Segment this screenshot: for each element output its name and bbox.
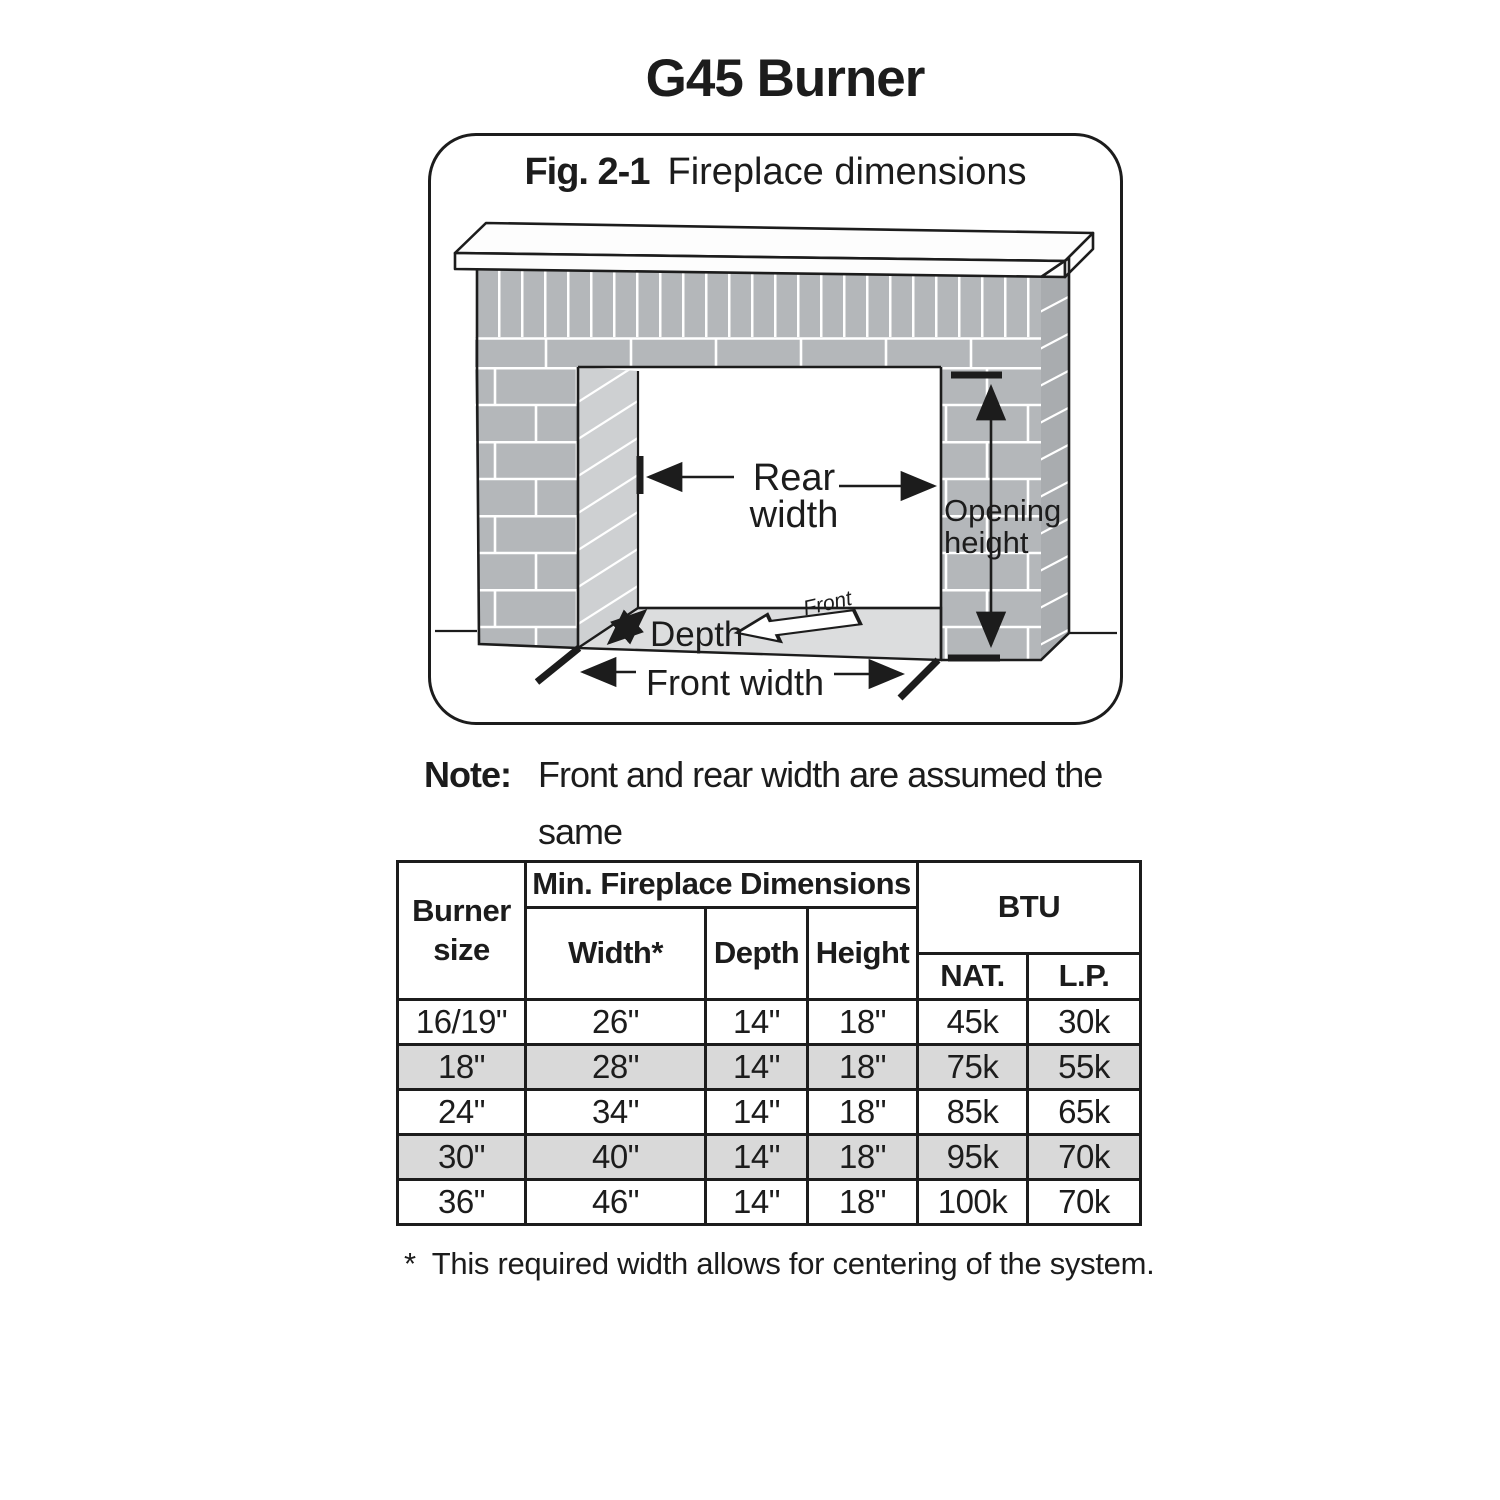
cell-size: 36" <box>398 1180 526 1225</box>
figure-caption: Fig. 2-1Fireplace dimensions <box>431 151 1120 194</box>
dimensions-table: Burner size Min. Fireplace Dimensions BT… <box>396 860 1142 1226</box>
cell-size: 16/19" <box>398 1000 526 1045</box>
cell-nat: 95k <box>918 1135 1028 1180</box>
stretcher-brick-course <box>475 337 1041 367</box>
depth-label: Depth <box>650 615 743 654</box>
cell-size: 24" <box>398 1090 526 1135</box>
cell-lp: 55k <box>1028 1045 1141 1090</box>
cell-width: 34" <box>526 1090 706 1135</box>
cell-nat: 45k <box>918 1000 1028 1045</box>
cell-width: 40" <box>526 1135 706 1180</box>
manual-page: G45 Burner <box>0 0 1500 1500</box>
figure-box: Front Rear width Opening height Depth Fr… <box>428 133 1123 725</box>
cell-height: 18" <box>808 1045 918 1090</box>
cell-depth: 14" <box>706 1180 808 1225</box>
table-row: 36"46"14"18"100k70k <box>398 1180 1141 1225</box>
page-title: G45 Burner <box>646 48 925 109</box>
soldier-brick-course <box>475 270 1041 337</box>
opening-height-label-line1: Opening <box>944 493 1061 528</box>
rear-width-label-line2: width <box>749 494 839 536</box>
cell-nat: 75k <box>918 1045 1028 1090</box>
left-jamb <box>575 362 641 648</box>
header-min-dims: Min. Fireplace Dimensions <box>526 862 918 908</box>
cell-height: 18" <box>808 1090 918 1135</box>
cell-lp: 65k <box>1028 1090 1141 1135</box>
fireplace-diagram: Front Rear width Opening height Depth Fr… <box>431 136 1120 722</box>
front-width-left-tick <box>537 648 579 682</box>
table-row: 18"28"14"18"75k55k <box>398 1045 1141 1090</box>
header-lp: L.P. <box>1028 954 1141 1000</box>
table-row: 16/19"26"14"18"45k30k <box>398 1000 1141 1045</box>
dimensions-table-body: 16/19"26"14"18"45k30k18"28"14"18"75k55k2… <box>398 1000 1141 1225</box>
cell-depth: 14" <box>706 1090 808 1135</box>
header-height: Height <box>808 908 918 1000</box>
cell-lp: 70k <box>1028 1135 1141 1180</box>
cell-height: 18" <box>808 1180 918 1225</box>
cell-lp: 70k <box>1028 1180 1141 1225</box>
front-width-label: Front width <box>646 662 824 703</box>
cell-depth: 14" <box>706 1135 808 1180</box>
cell-size: 30" <box>398 1135 526 1180</box>
mantel-shelf <box>455 223 1093 277</box>
header-depth: Depth <box>706 908 808 1000</box>
header-nat: NAT. <box>918 954 1028 1000</box>
header-width: Width* <box>526 908 706 1000</box>
footnote-text: This required width allows for centering… <box>432 1246 1155 1282</box>
cell-lp: 30k <box>1028 1000 1141 1045</box>
footnote-marker: * <box>404 1246 416 1282</box>
cell-width: 28" <box>526 1045 706 1090</box>
table-row: 30"40"14"18"95k70k <box>398 1135 1141 1180</box>
opening-height-label-line2: height <box>944 525 1029 560</box>
cell-height: 18" <box>808 1135 918 1180</box>
figure-caption-label: Fig. 2-1 <box>524 151 649 193</box>
cell-size: 18" <box>398 1045 526 1090</box>
footnote: * This required width allows for centeri… <box>404 1246 1154 1282</box>
header-burner-size: Burner size <box>398 862 526 1000</box>
rear-width-label-line1: Rear <box>753 457 836 499</box>
cell-nat: 100k <box>918 1180 1028 1225</box>
cell-width: 26" <box>526 1000 706 1045</box>
table-row: 24"34"14"18"85k65k <box>398 1090 1141 1135</box>
figure-caption-text: Fireplace dimensions <box>667 151 1026 193</box>
cell-nat: 85k <box>918 1090 1028 1135</box>
cell-depth: 14" <box>706 1045 808 1090</box>
cell-depth: 14" <box>706 1000 808 1045</box>
cell-width: 46" <box>526 1180 706 1225</box>
left-pillar <box>475 367 578 648</box>
front-width-right-tick <box>900 660 938 698</box>
header-btu: BTU <box>918 862 1141 954</box>
cell-height: 18" <box>808 1000 918 1045</box>
